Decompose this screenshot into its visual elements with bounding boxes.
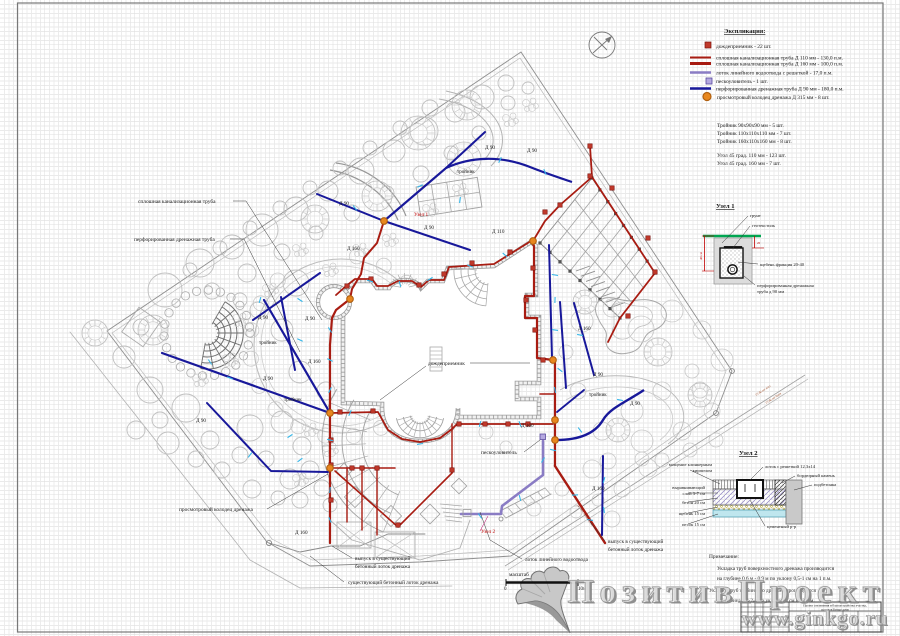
svg-text:Д 90: Д 90 <box>593 372 603 378</box>
svg-text:бордюрный камень: бордюрный камень <box>797 473 835 478</box>
svg-text:выпуск в существующий: выпуск в существующий <box>355 555 411 562</box>
svg-text:20: 20 <box>757 241 761 245</box>
svg-text:Д 90: Д 90 <box>485 145 495 151</box>
svg-text:дождеприемник - 22 шт.: дождеприемник - 22 шт. <box>716 44 772 50</box>
svg-text:перфорированная дренажная труб: перфорированная дренажная труба <box>134 236 215 243</box>
svg-text:щебень фракция 20-40: щебень фракция 20-40 <box>760 262 805 267</box>
svg-text:www.ginkgo.ru: www.ginkgo.ru <box>742 606 888 630</box>
svg-text:щебень 15 см: щебень 15 см <box>679 511 705 516</box>
svg-text:Д 90: Д 90 <box>424 225 434 231</box>
svg-text:Экспликация:: Экспликация: <box>724 28 765 35</box>
svg-text:выравнивающий: выравнивающий <box>672 485 705 490</box>
svg-text:Д 90: Д 90 <box>339 201 349 207</box>
svg-text:Д 160: Д 160 <box>521 423 534 429</box>
svg-text:Угол 45 град. 160 мм - 7 шт.: Угол 45 град. 160 мм - 7 шт. <box>717 161 781 167</box>
svg-text:лоток линейного водоотвода с р: лоток линейного водоотвода с решеткой - … <box>716 70 833 77</box>
svg-text:Д 90: Д 90 <box>630 401 640 407</box>
svg-text:Д 90: Д 90 <box>263 376 273 382</box>
svg-text:Д 160: Д 160 <box>347 246 360 252</box>
svg-text:перфорированная дренажная: перфорированная дренажная <box>757 283 815 288</box>
svg-text:Узел 1: Узел 1 <box>716 203 735 210</box>
svg-text:бетонный лоток дренажа: бетонный лоток дренажа <box>608 546 664 553</box>
svg-text:труба д 90 мм: труба д 90 мм <box>757 289 784 294</box>
svg-text:просмотровый колодец дренажа: просмотровый колодец дренажа <box>179 506 253 513</box>
svg-text:геотекстиль: геотекстиль <box>752 223 775 228</box>
svg-text:Угол 45 град. 110 мм - 123 шт.: Угол 45 град. 110 мм - 123 шт. <box>717 153 786 159</box>
svg-text:грунт: грунт <box>750 213 761 218</box>
svg-text:сплошная канализационная труба: сплошная канализационная труба Д 110 мм … <box>716 55 843 62</box>
svg-text:перфорированная дренажная труб: перфорированная дренажная труба Д 90 мм … <box>716 86 844 93</box>
svg-text:подбетонка: подбетонка <box>814 482 836 487</box>
svg-text:кирпичом: кирпичом <box>693 468 712 473</box>
svg-text:тройник: тройник <box>259 341 277 346</box>
svg-text:Узел 2: Узел 2 <box>481 529 495 535</box>
svg-text:Д 160: Д 160 <box>578 326 591 332</box>
svg-text:мощение клинкерным: мощение клинкерным <box>669 462 712 467</box>
svg-text:выпуск в существующий: выпуск в существующий <box>608 538 664 545</box>
svg-text:лоток линейного водоотвода: лоток линейного водоотвода <box>525 556 589 563</box>
svg-text:Укладка труб поверхностного др: Укладка труб поверхностного дренажа прои… <box>717 565 835 572</box>
svg-text:Д 90: Д 90 <box>305 316 315 322</box>
svg-text:Узел 2: Узел 2 <box>739 450 758 457</box>
svg-text:сплошная канализационная труба: сплошная канализационная труба <box>138 198 216 205</box>
svg-text:цементный р-р: цементный р-р <box>767 524 797 529</box>
svg-text:Тройник 110х110х110 мм - 7 шт.: Тройник 110х110х110 мм - 7 шт. <box>717 130 791 137</box>
svg-text:тройник: тройник <box>457 170 475 175</box>
svg-text:пескоуловитель - 1 шт.: пескоуловитель - 1 шт. <box>716 79 768 85</box>
svg-text:сплошная канализационная труба: сплошная канализационная труба Д 160 мм … <box>716 61 843 68</box>
svg-text:Узел 1: Узел 1 <box>414 212 428 218</box>
svg-text:Д 90: Д 90 <box>527 148 537 154</box>
svg-text:Д 110: Д 110 <box>492 229 505 235</box>
svg-text:слой 3-7 см: слой 3-7 см <box>683 491 706 496</box>
svg-text:масштаб: масштаб <box>509 571 529 578</box>
svg-text:бетонный лоток дренажа: бетонный лоток дренажа <box>355 563 411 570</box>
svg-text:пескоуловитель: пескоуловитель <box>481 450 517 456</box>
svg-text:дождеприемник: дождеприемник <box>428 361 465 367</box>
svg-text:Д 90: Д 90 <box>258 315 268 321</box>
svg-text:Д 160: Д 160 <box>592 486 605 492</box>
svg-text:Д 160: Д 160 <box>295 530 308 536</box>
svg-text:40 см: 40 см <box>699 251 703 260</box>
svg-text:тройник: тройник <box>589 393 607 398</box>
svg-text:бетон 20 см: бетон 20 см <box>682 500 705 505</box>
svg-text:Д 160: Д 160 <box>308 359 321 365</box>
svg-text:существующий бетонный лоток др: существующий бетонный лоток дренажа <box>348 579 439 586</box>
svg-text:песок 15 см: песок 15 см <box>682 522 705 527</box>
svg-text:просмотровый колодец дренажа Д: просмотровый колодец дренажа Д 315 мм - … <box>717 94 829 101</box>
svg-text:Тройник 160х110х160 мм - 8 шт.: Тройник 160х110х160 мм - 8 шт. <box>717 138 792 145</box>
svg-text:тройник: тройник <box>284 398 302 403</box>
svg-text:Д 90: Д 90 <box>196 418 206 424</box>
svg-text:Примечание:: Примечание: <box>709 554 739 560</box>
svg-text:Тройник 90х90х90 мм - 5 шт.: Тройник 90х90х90 мм - 5 шт. <box>717 122 784 129</box>
